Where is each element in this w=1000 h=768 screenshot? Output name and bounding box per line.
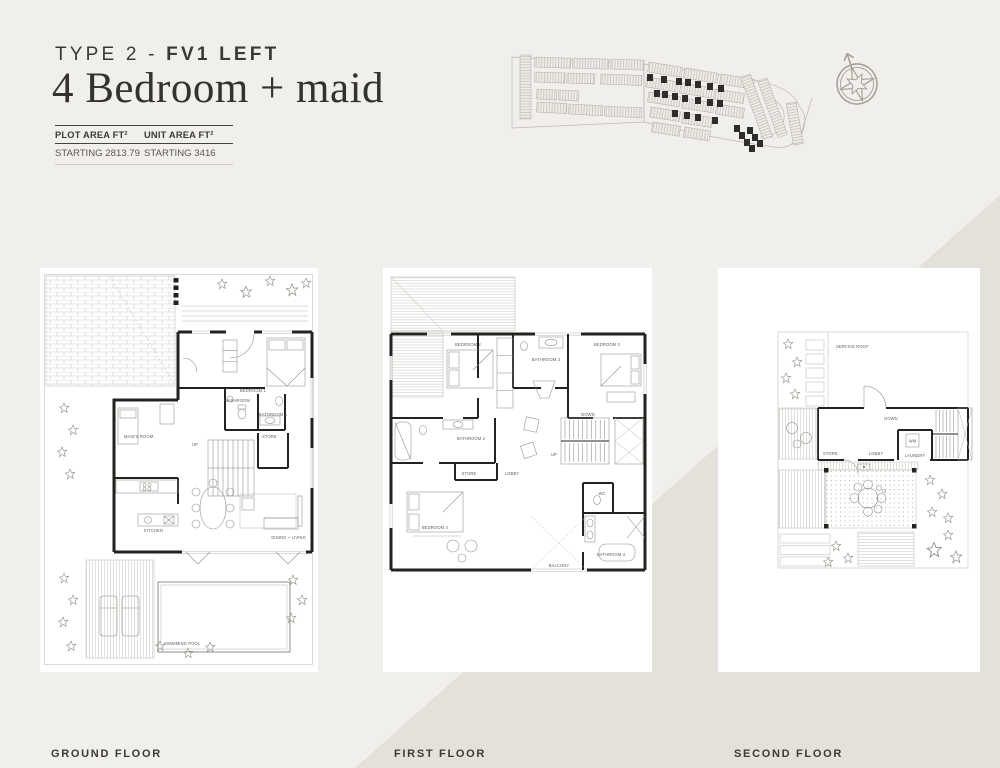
- door-arc: [864, 386, 886, 408]
- room-label-bathroom3: BATHROOM 3: [532, 357, 561, 362]
- door-arc: [230, 334, 254, 358]
- room-label-lobby: LOBBY: [505, 471, 520, 476]
- room-label-down: DOWN: [884, 416, 898, 421]
- room-label-dining-living: DINING + LIVING: [271, 535, 306, 540]
- room-label-washroom: WASHROOM: [224, 398, 251, 403]
- room-label-wc: WC: [598, 491, 605, 496]
- type-prefix: TYPE 2 -: [55, 44, 166, 65]
- type-heading: TYPE 2 - FV1 LEFT: [55, 44, 279, 66]
- room-label-bedroom4: BEDROOM 4: [422, 525, 448, 530]
- room-label-laundry: LAUNDRY: [905, 453, 926, 458]
- unit-area-header: UNIT AREA FT²: [144, 130, 233, 140]
- room-label-kitchen: KITCHEN: [144, 528, 163, 533]
- wc-fixtures: [594, 496, 601, 505]
- second-floor-panel: SERVICE ROOF DOWN STORE LOBBY LAUNDRY WM: [718, 268, 980, 672]
- room-label-down: DOWN: [581, 412, 595, 417]
- room-label-up: UP: [551, 452, 557, 457]
- ground-floor-plan: BEDROOM 1 WASHROOM BATHROOM 1 STORE UP M…: [40, 268, 318, 672]
- second-floor-plan: SERVICE ROOF DOWN STORE LOBBY LAUNDRY WM: [718, 268, 980, 672]
- bedroom3-furniture: [601, 354, 641, 402]
- driveway: [46, 276, 179, 386]
- ground-floor-caption: GROUND FLOOR: [51, 748, 162, 760]
- room-label-service-roof: SERVICE ROOF: [836, 344, 869, 349]
- room-label-wm: WM: [909, 439, 917, 444]
- roof-hatch: [391, 277, 515, 397]
- type-code: FV1 LEFT: [166, 44, 279, 65]
- plot-area-value: STARTING 2813.79: [55, 148, 144, 159]
- page-title: 4 Bedroom + maid: [52, 64, 384, 113]
- living-furniture: [240, 494, 302, 529]
- bathroom3-fixtures: [521, 337, 564, 351]
- room-label-store: STORE: [823, 451, 838, 456]
- first-floor-caption: FIRST FLOOR: [394, 748, 486, 760]
- room-label-bedroom3: BEDROOM 3: [594, 342, 620, 347]
- siteplan-unit-rows: [520, 55, 803, 145]
- stairs: [208, 440, 254, 496]
- balcony-marks: [531, 516, 587, 570]
- room-label-swimming-pool: SWIMMING POOL: [164, 641, 201, 646]
- room-label-store: STORE: [462, 471, 477, 476]
- unit-area-value: STARTING 3416: [144, 148, 233, 159]
- bedroom1-furniture: [223, 338, 305, 386]
- room-label-balcony: BALCONY: [549, 563, 570, 568]
- room-label-bedroom1: BEDROOM 1: [240, 388, 266, 393]
- room-label-up: UP: [192, 442, 198, 447]
- bedroom2-furniture: [447, 338, 513, 408]
- room-label-bathroom4: BATHROOM 4: [597, 552, 626, 557]
- stairs: [561, 418, 609, 464]
- door-arc: [183, 358, 197, 372]
- kitchen-furniture: [116, 480, 178, 526]
- compass-rose-icon: [820, 44, 894, 118]
- sliding-door-marks: [186, 552, 300, 564]
- room-label-lobby: LOBBY: [869, 451, 884, 456]
- windows: [182, 331, 313, 553]
- room-label-bathroom2: BATHROOM 2: [457, 436, 486, 441]
- room-label-store: STORE: [262, 434, 277, 439]
- lobby-furniture: [520, 417, 539, 459]
- first-floor-panel: BEDROOM 2 BATHROOM 3 BEDROOM 3 BATHROOM …: [383, 268, 652, 672]
- shower-duct: [533, 381, 555, 398]
- room-label-maids-room: MAID'S ROOM: [124, 434, 154, 439]
- first-floor-plan: BEDROOM 2 BATHROOM 3 BEDROOM 3 BATHROOM …: [383, 268, 652, 672]
- roof-closet: [958, 408, 972, 460]
- ground-floor-panel: BEDROOM 1 WASHROOM BATHROOM 1 STORE UP M…: [40, 268, 318, 672]
- brochure-page: TYPE 2 - FV1 LEFT 4 Bedroom + maid PLOT …: [0, 0, 1000, 768]
- wardrobe: [615, 418, 643, 464]
- masterplan-locator: [504, 40, 816, 162]
- room-label-bedroom2: BEDROOM 2: [455, 342, 481, 347]
- area-table: PLOT AREA FT² UNIT AREA FT² STARTING 281…: [55, 125, 233, 165]
- stairs: [932, 410, 958, 458]
- second-floor-caption: SECOND FLOOR: [734, 748, 843, 760]
- room-label-bathroom1: BATHROOM 1: [259, 412, 288, 417]
- entry-path: [182, 306, 308, 321]
- room-labels: SERVICE ROOF DOWN STORE LOBBY LAUNDRY WM: [823, 344, 925, 458]
- plot-area-header: PLOT AREA FT²: [55, 130, 144, 140]
